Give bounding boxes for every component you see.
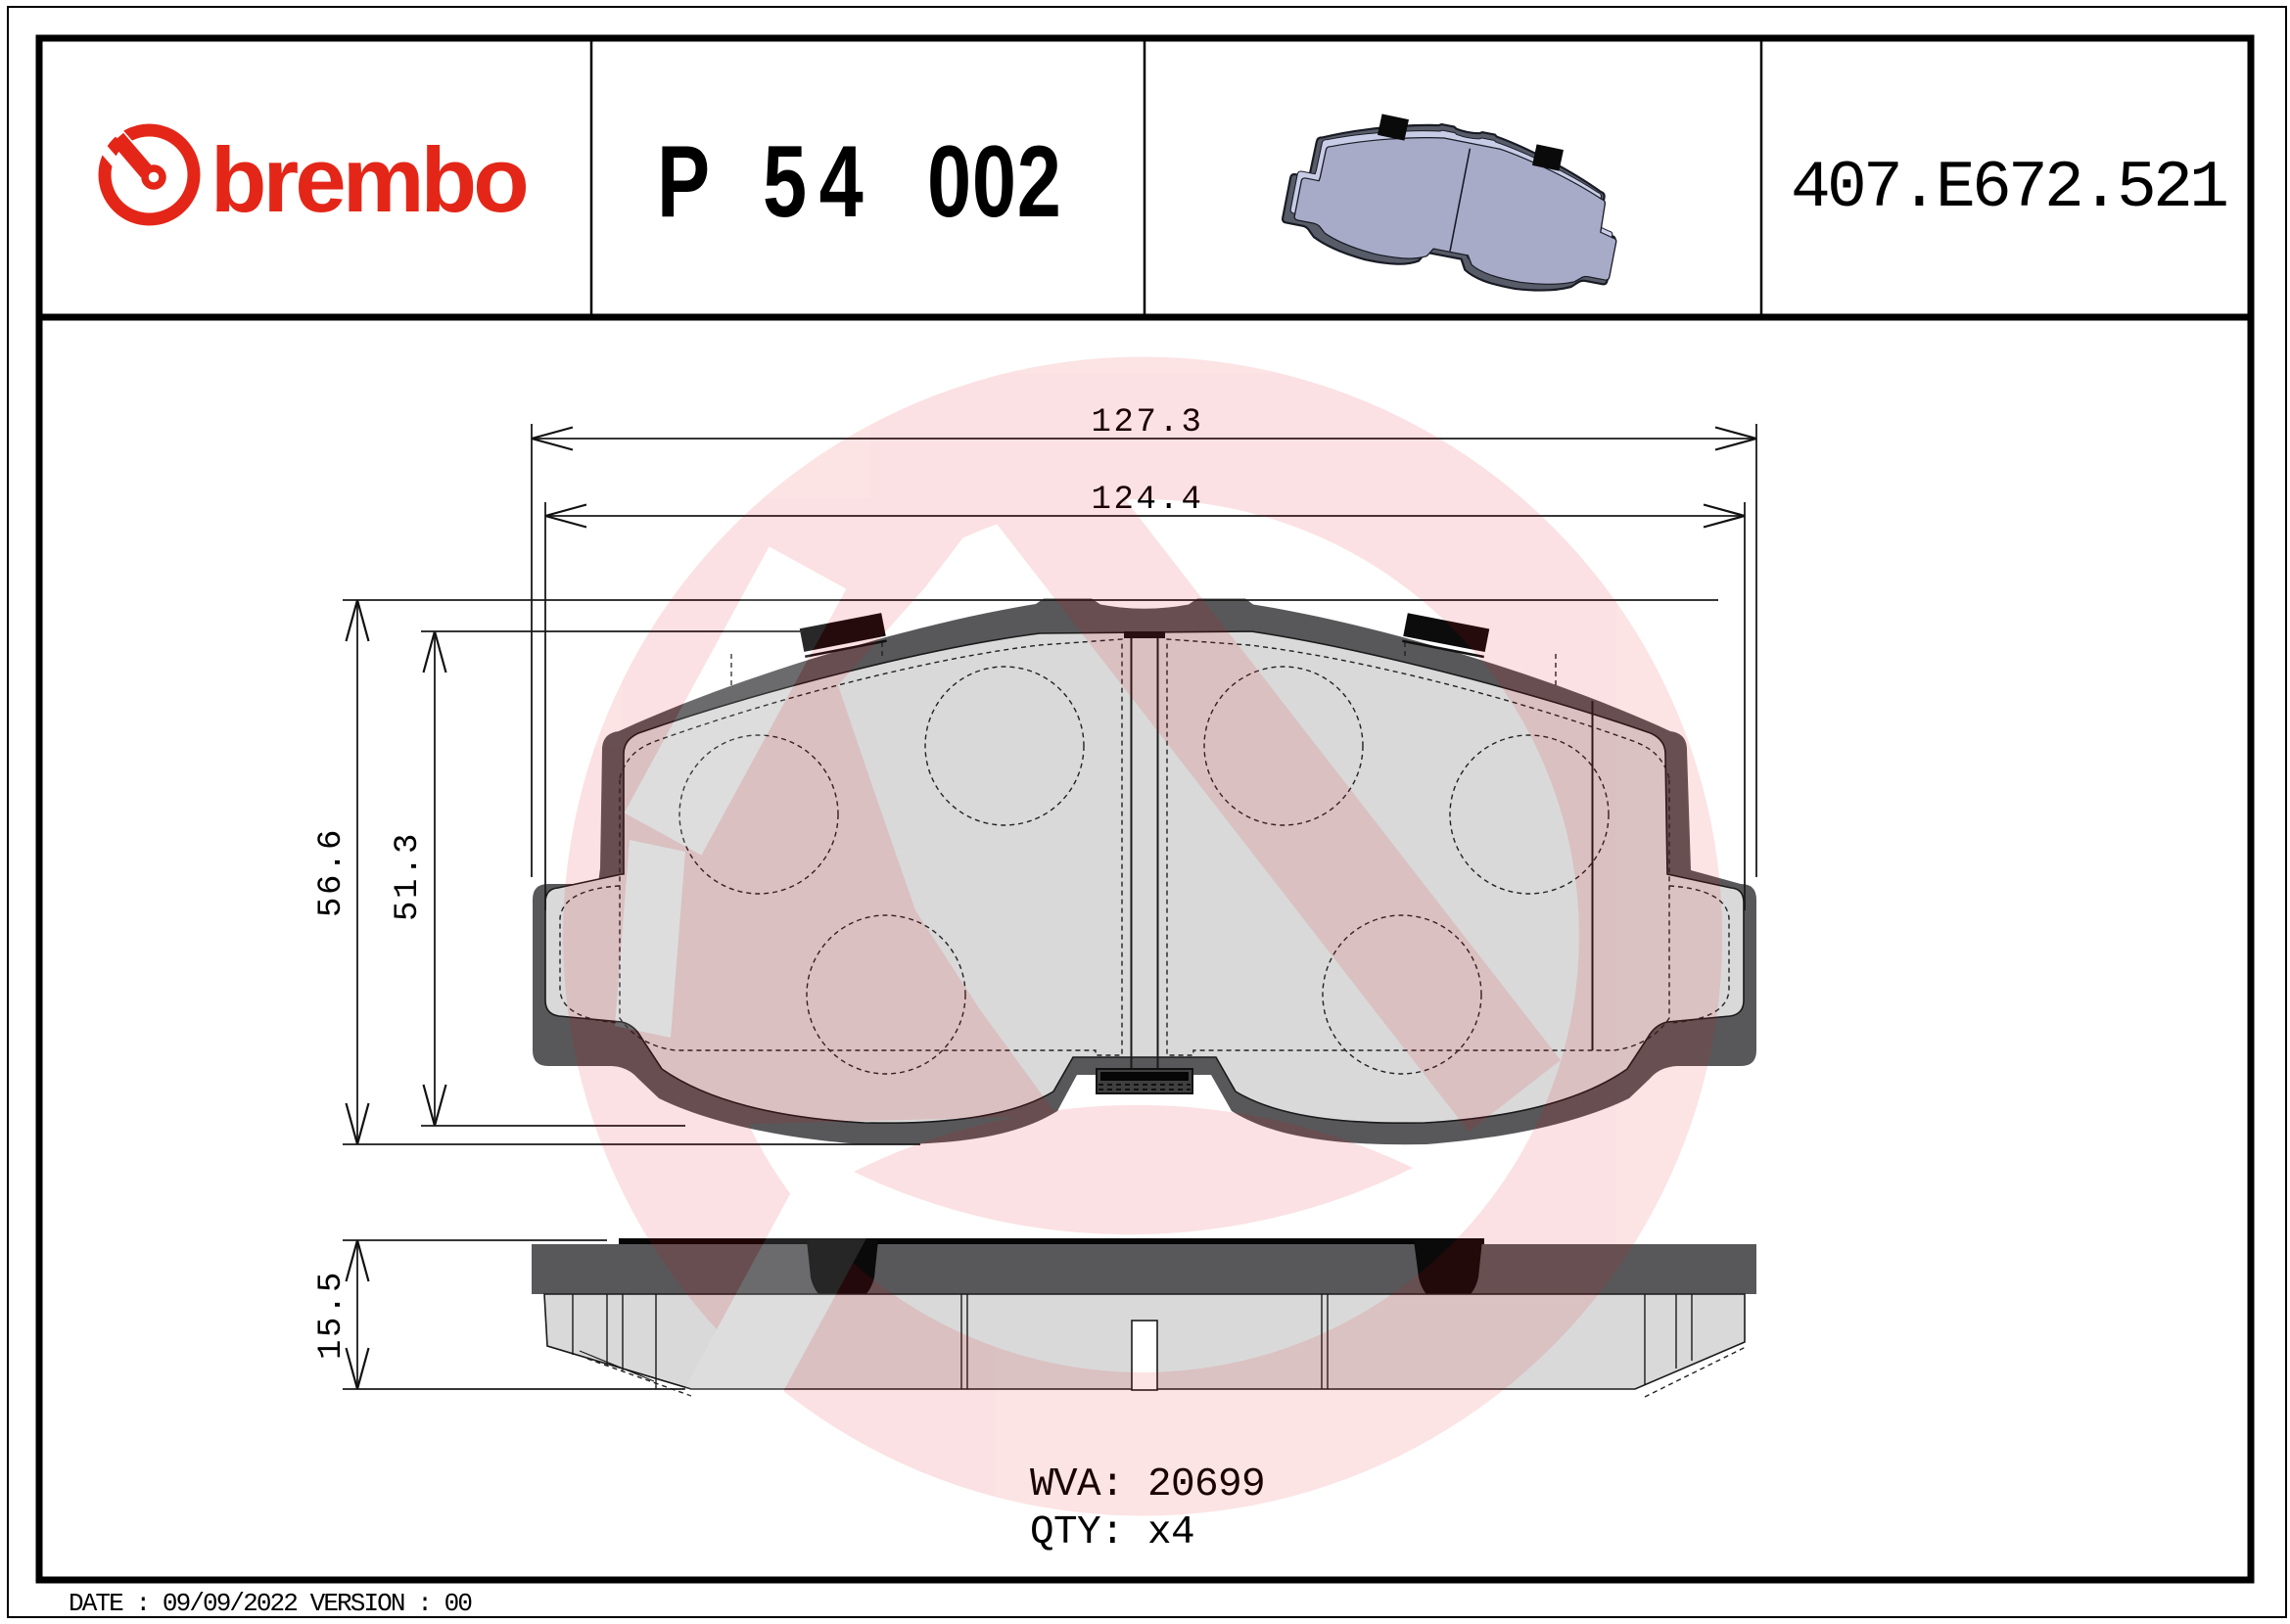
svg-text:002: 002 bbox=[927, 124, 1062, 238]
svg-text:51.3: 51.3 bbox=[390, 831, 427, 921]
svg-text:DATE : 09/09/2022 VERSION : 00: DATE : 09/09/2022 VERSION : 00 bbox=[69, 1589, 471, 1618]
svg-text:54: 54 bbox=[763, 124, 875, 238]
svg-text:15.5: 15.5 bbox=[313, 1270, 351, 1360]
svg-text:P: P bbox=[657, 124, 710, 238]
svg-text:brembo: brembo bbox=[210, 128, 526, 231]
svg-text:407.E672.521: 407.E672.521 bbox=[1791, 151, 2226, 226]
svg-text:QTY: x4: QTY: x4 bbox=[1030, 1510, 1194, 1555]
svg-text:56.6: 56.6 bbox=[313, 827, 351, 917]
